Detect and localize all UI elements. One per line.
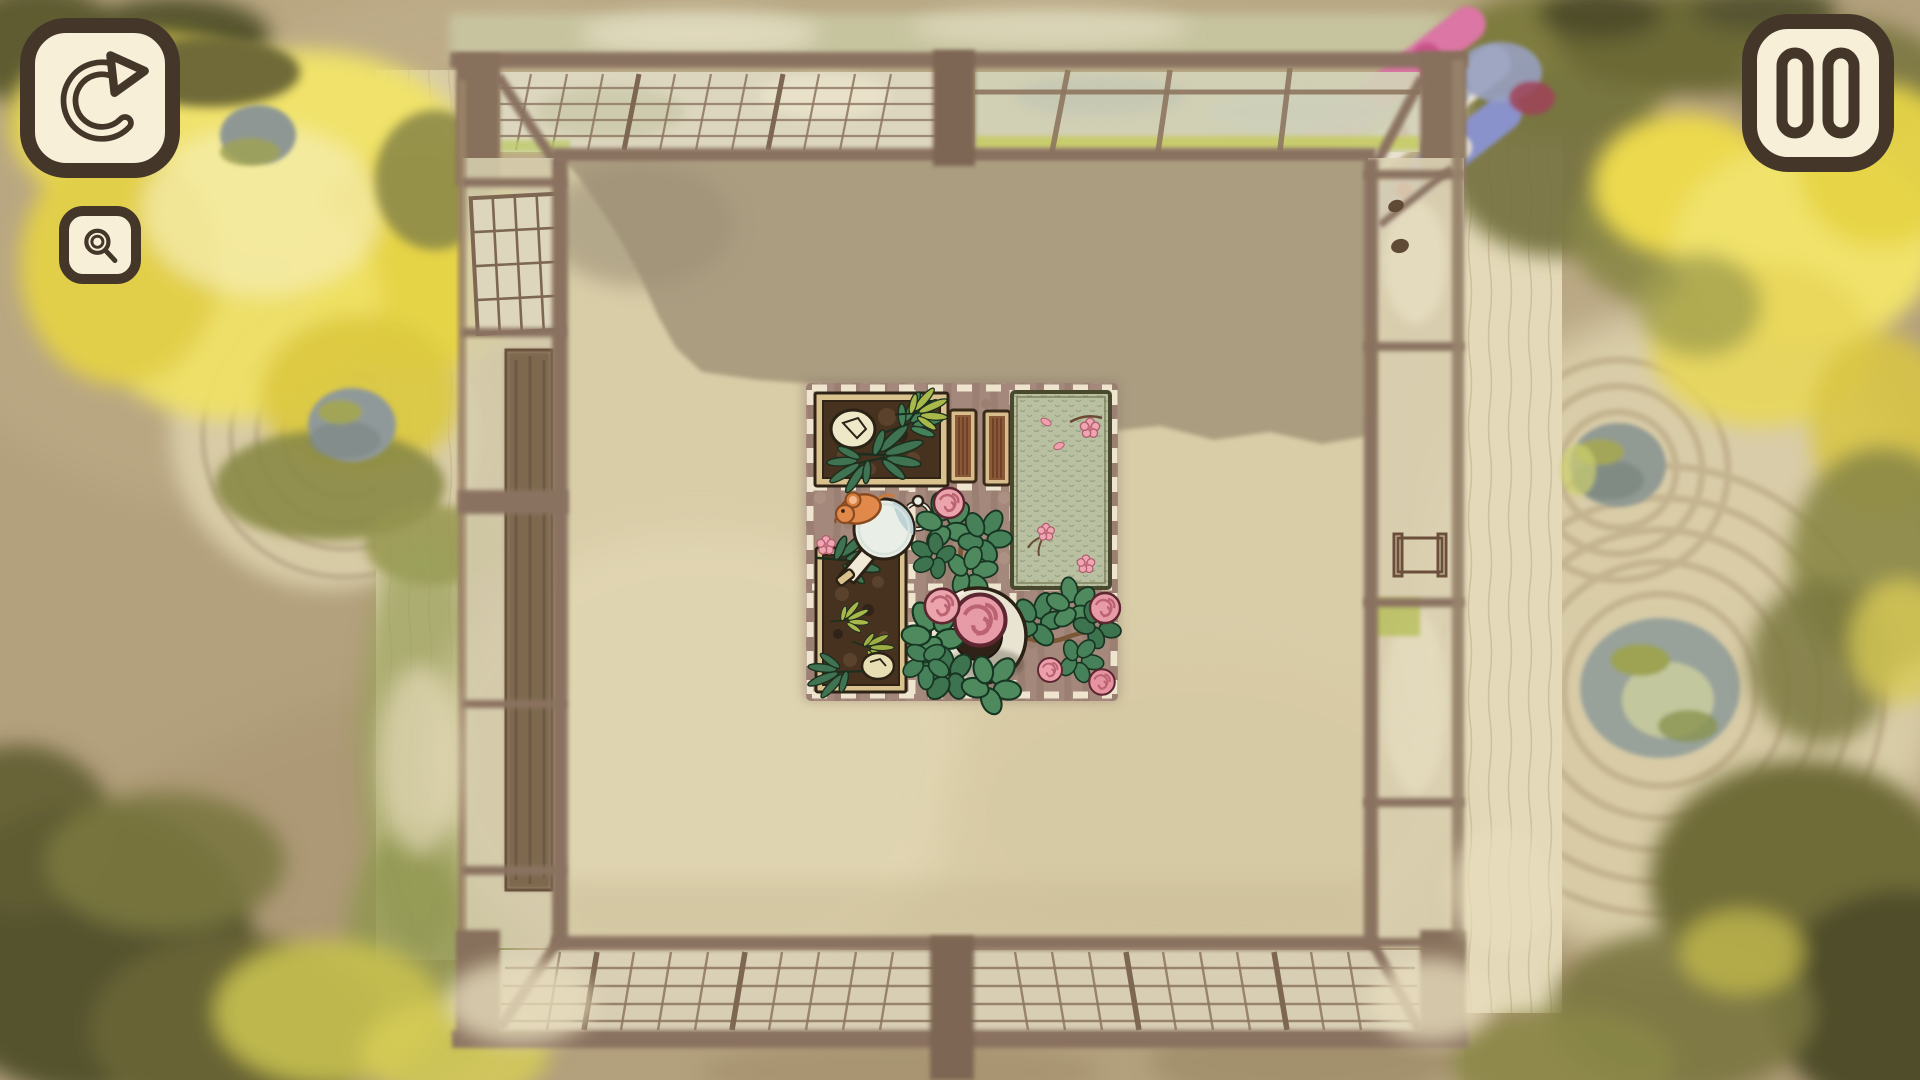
- restart-arrow-icon: [48, 46, 152, 150]
- piece-tatami-mat[interactable]: [1012, 392, 1110, 588]
- rock-right-large: [1580, 618, 1740, 758]
- pause-icon: [1770, 41, 1866, 145]
- pause-button[interactable]: [1742, 14, 1894, 172]
- game-screen: [0, 0, 1920, 1080]
- rock-left-mid: [308, 388, 396, 462]
- zoom-button[interactable]: [59, 206, 141, 284]
- restart-button[interactable]: [20, 18, 180, 178]
- piece-garden-bed-top[interactable]: [815, 383, 955, 500]
- shoji-wall-right: [1364, 60, 1464, 960]
- magnifier-icon: [74, 220, 126, 270]
- puzzle-board: [801, 380, 1135, 726]
- scene-svg: [0, 0, 1920, 1080]
- shoji-wall-left: [458, 80, 568, 952]
